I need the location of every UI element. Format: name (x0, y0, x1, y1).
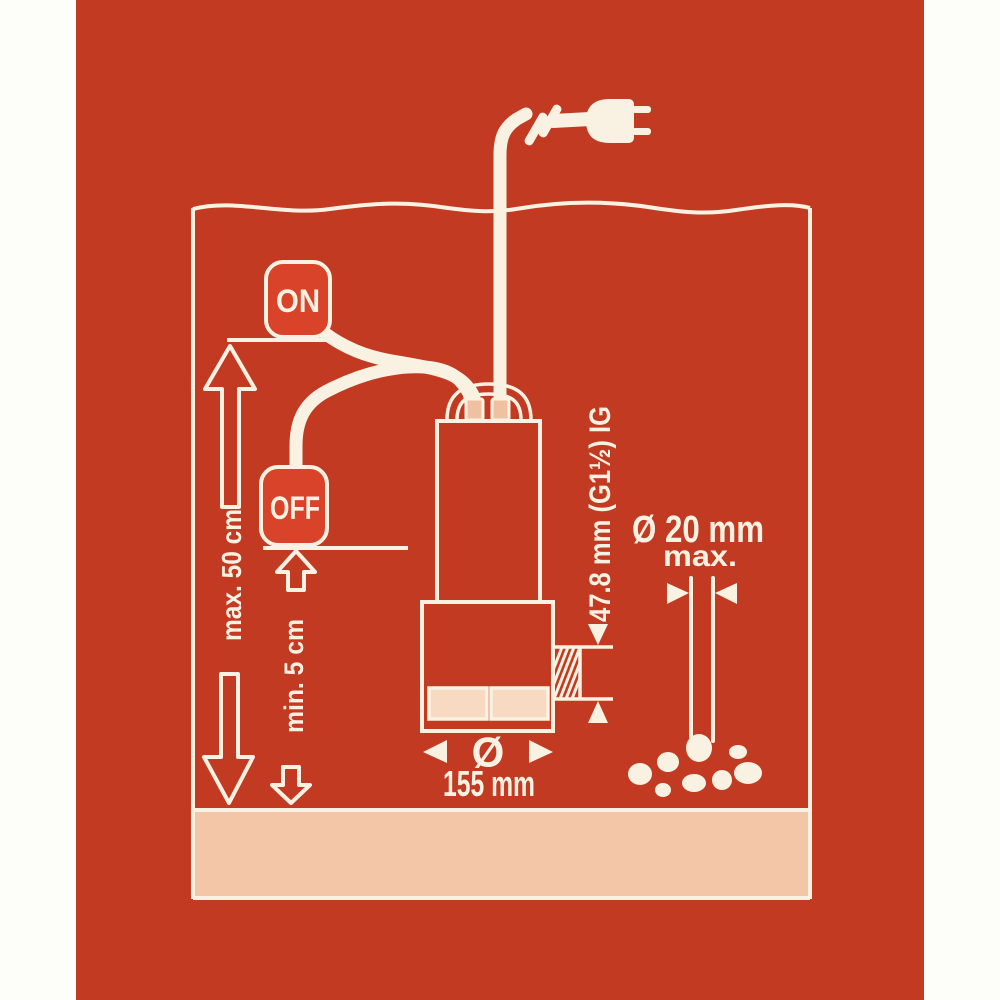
pebble (682, 774, 706, 792)
plug-prong-bottom (632, 128, 651, 135)
diameter-value-label: 155 mm (443, 763, 535, 804)
pebble (734, 762, 762, 784)
on-float-label: ON (276, 283, 320, 319)
pump-vent-right (491, 688, 548, 719)
pump-vent-left (429, 688, 487, 719)
diagram-canvas: 47.8 mm (G1½) IG ON OFF ma (0, 0, 1000, 1000)
min-level-label: min. 5 cm (279, 619, 309, 733)
thread-size-label: 47.8 mm (G1½) IG (584, 406, 617, 622)
plug-prong-top (632, 106, 651, 113)
pebble-in-gauge (686, 734, 712, 762)
off-float-label: OFF (270, 490, 320, 526)
pebble (729, 745, 747, 759)
pebble (712, 770, 732, 790)
cable-gland-left (466, 399, 483, 420)
pebble (655, 783, 671, 797)
plug-body (586, 99, 634, 143)
pebble (657, 752, 679, 772)
max-level-label: max. 50 cm (216, 509, 247, 641)
plug-stem (553, 119, 590, 121)
cable-gland-right (492, 399, 509, 420)
ground-strip (195, 812, 808, 897)
grain-size-suffix-label: max. (663, 540, 737, 573)
pebble (628, 763, 652, 785)
pump-installation-diagram: 47.8 mm (G1½) IG ON OFF ma (0, 0, 1000, 1000)
